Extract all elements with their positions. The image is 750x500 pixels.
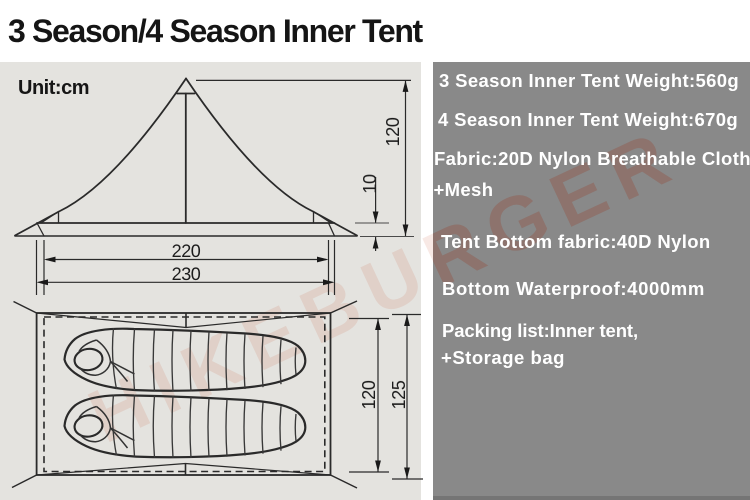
svg-text:220: 220: [172, 241, 201, 261]
svg-text:230: 230: [172, 264, 201, 284]
